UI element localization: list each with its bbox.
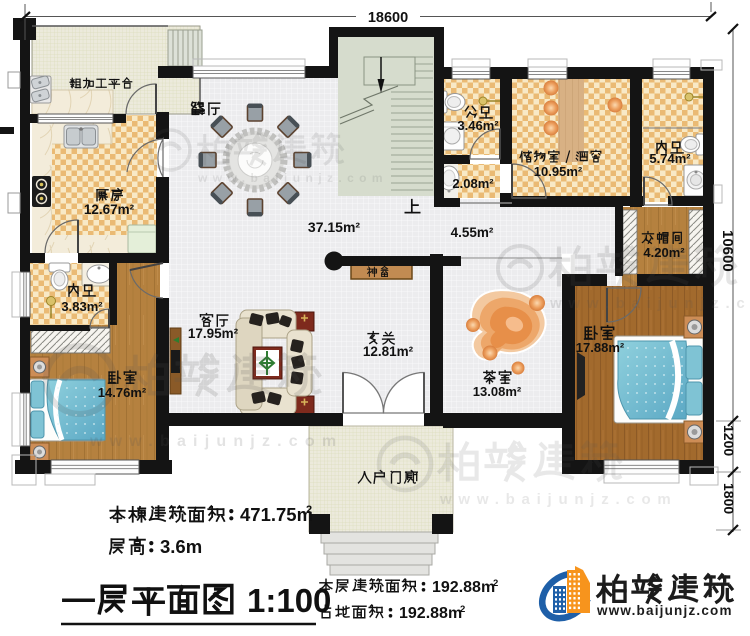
svg-text:17.88m²: 17.88m² xyxy=(576,340,625,355)
svg-text:2.08m²: 2.08m² xyxy=(452,176,494,191)
svg-text:14.76m²: 14.76m² xyxy=(98,385,147,400)
svg-text:4.20m²: 4.20m² xyxy=(643,245,685,260)
svg-text:10600: 10600 xyxy=(719,230,736,272)
svg-text:1800: 1800 xyxy=(721,483,737,514)
svg-text:12.81m²: 12.81m² xyxy=(363,344,414,359)
svg-text:www.baijunjz.com: www.baijunjz.com xyxy=(89,433,343,450)
svg-text:471.75m: 471.75m xyxy=(240,504,313,525)
svg-text:5.74m²: 5.74m² xyxy=(649,151,691,166)
svg-text:10.95m²: 10.95m² xyxy=(534,164,583,179)
svg-text:192.88m: 192.88m xyxy=(432,579,495,596)
svg-text:www.baijunjz.com: www.baijunjz.com xyxy=(596,603,733,618)
svg-text:192.88m: 192.88m xyxy=(399,605,462,622)
svg-text:3.46m²: 3.46m² xyxy=(457,118,499,133)
svg-text:4.55m²: 4.55m² xyxy=(451,225,494,240)
svg-text:2: 2 xyxy=(306,504,312,516)
svg-text:www.baijunjz.com: www.baijunjz.com xyxy=(197,171,388,185)
svg-text:3.83m²: 3.83m² xyxy=(61,299,103,314)
svg-text:3.6m: 3.6m xyxy=(160,536,202,557)
svg-text:17.95m²: 17.95m² xyxy=(188,326,239,341)
svg-text:www.baijunjz.com: www.baijunjz.com xyxy=(549,295,750,312)
svg-text:1200: 1200 xyxy=(721,425,737,456)
svg-text:2: 2 xyxy=(493,578,498,589)
svg-text:www.baijunjz.com: www.baijunjz.com xyxy=(439,491,677,508)
svg-text:1:100: 1:100 xyxy=(247,582,331,619)
svg-text:12.67m²: 12.67m² xyxy=(84,202,135,217)
svg-text:37.15m²: 37.15m² xyxy=(308,219,360,235)
svg-text:2: 2 xyxy=(460,604,465,615)
svg-text:18600: 18600 xyxy=(368,10,408,26)
svg-text:13.08m²: 13.08m² xyxy=(473,384,522,399)
